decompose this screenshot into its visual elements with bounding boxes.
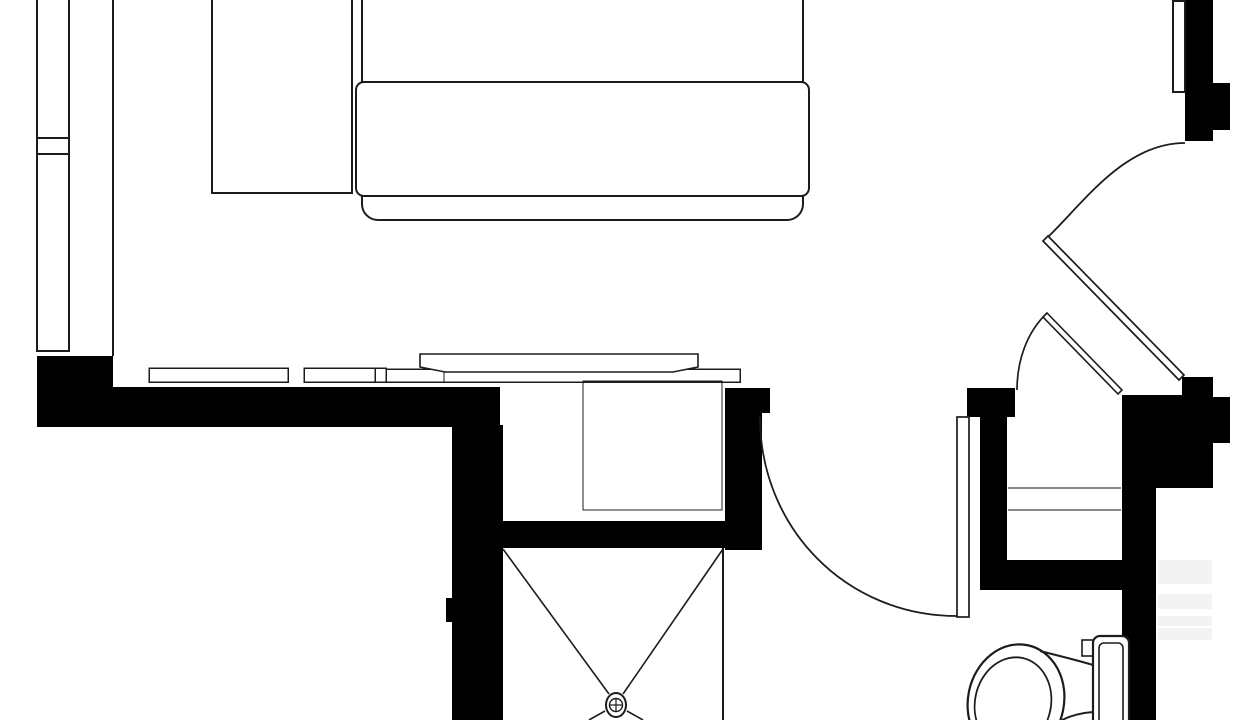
- wall-closet-bottom: [980, 560, 1143, 590]
- wall-niche-bottom: [497, 521, 760, 548]
- towel-shelf-faint-3: [1158, 616, 1212, 626]
- floor-plan: [0, 0, 1260, 720]
- window-jamb-right: [1173, 1, 1185, 92]
- wall-shower-left-notch: [446, 598, 452, 622]
- shower-slope-line-1: [503, 549, 609, 694]
- bathroom-door-swing-arc: [760, 417, 957, 616]
- closet-door-leaf: [1043, 313, 1122, 394]
- vanity-outline: [583, 381, 722, 510]
- wall-shower-left: [452, 425, 503, 720]
- sofa-back: [362, 0, 803, 82]
- counter-segment-joint: [375, 368, 386, 382]
- wall-band-lower-left: [113, 387, 500, 427]
- wall-left-block: [37, 356, 113, 427]
- window-mullion: [37, 138, 69, 154]
- shower-slope-line-3: [589, 711, 605, 720]
- desk-top: [420, 354, 698, 372]
- entry-door-swing-arc: [1048, 143, 1185, 237]
- closet-door-swing-arc: [1017, 313, 1047, 390]
- bathroom-door-leaf: [957, 417, 969, 617]
- shower-slope-line-4: [627, 711, 643, 720]
- wall-entry-jamb: [1182, 377, 1213, 395]
- towel-shelf-faint-4: [1158, 628, 1212, 640]
- wall-right-upper-step: [1213, 83, 1230, 130]
- wall-niche-right: [725, 388, 762, 550]
- counter-segment-1: [149, 368, 288, 382]
- sofa-seat: [356, 82, 809, 196]
- entry-door-leaf: [1043, 236, 1184, 380]
- toilet-neck-bottom: [1062, 712, 1093, 720]
- wall-niche-right-step: [762, 388, 770, 413]
- wall-right-mass-step: [1213, 397, 1230, 443]
- towel-shelf-faint-1: [1158, 560, 1212, 584]
- counter-segment-2: [304, 368, 378, 382]
- shower-slope-line-2: [623, 549, 723, 694]
- floor-plan-canvas: [0, 0, 1260, 720]
- side-table: [212, 0, 352, 193]
- towel-shelf-faint-2: [1158, 594, 1212, 609]
- wall-right-mass: [1122, 395, 1213, 488]
- wall-closet-left-top: [967, 388, 1015, 417]
- wall-right-upper-column: [1185, 0, 1213, 141]
